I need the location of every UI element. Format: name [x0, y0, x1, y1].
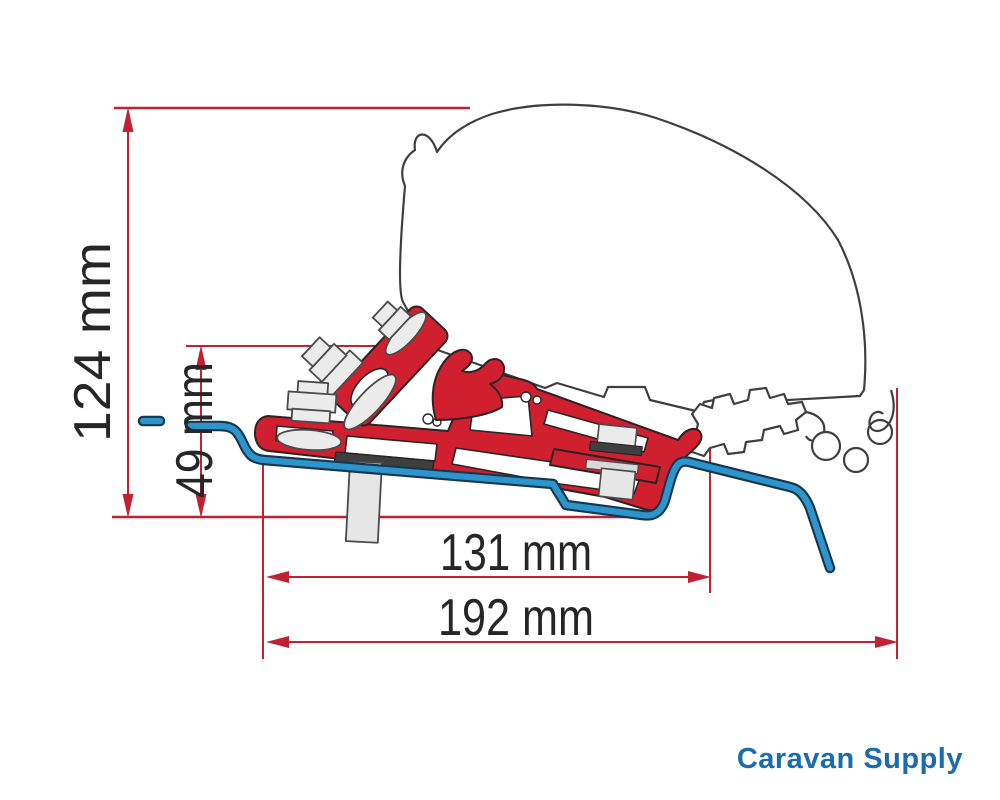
label-overall-height: 124 mm: [64, 242, 122, 442]
hex-nut-left-base: [291, 409, 330, 424]
label-inner-width: 131 mm: [440, 524, 592, 582]
dim-192-arrow-right: [875, 636, 898, 648]
bracket-curl-3: [423, 414, 433, 424]
diagram-canvas: 124 mm 49 mm 131 mm 192 mm: [0, 0, 1000, 800]
dim-131-arrow-left: [266, 571, 289, 583]
awning-roller-circle-1: [812, 432, 840, 460]
bracket-curl-2: [533, 396, 541, 404]
dim-124-arrow-up: [123, 107, 134, 132]
roof-stud-right: [599, 468, 636, 499]
awning-roller-circle-2: [844, 448, 868, 472]
awning-case-outline: [400, 105, 865, 412]
label-overall-width: 192 mm: [438, 589, 594, 647]
dim-192-arrow-left: [266, 636, 289, 648]
bracket-curl-1: [521, 392, 531, 402]
dim-124-arrow-down: [123, 494, 134, 518]
diagram-page: 124 mm 49 mm 131 mm 192 mm Caravan Suppl…: [0, 0, 1000, 800]
brand-logo: Caravan Supply: [737, 743, 963, 776]
dim-131-arrow-right: [688, 571, 711, 583]
label-bracket-height: 49 mm: [166, 362, 224, 498]
